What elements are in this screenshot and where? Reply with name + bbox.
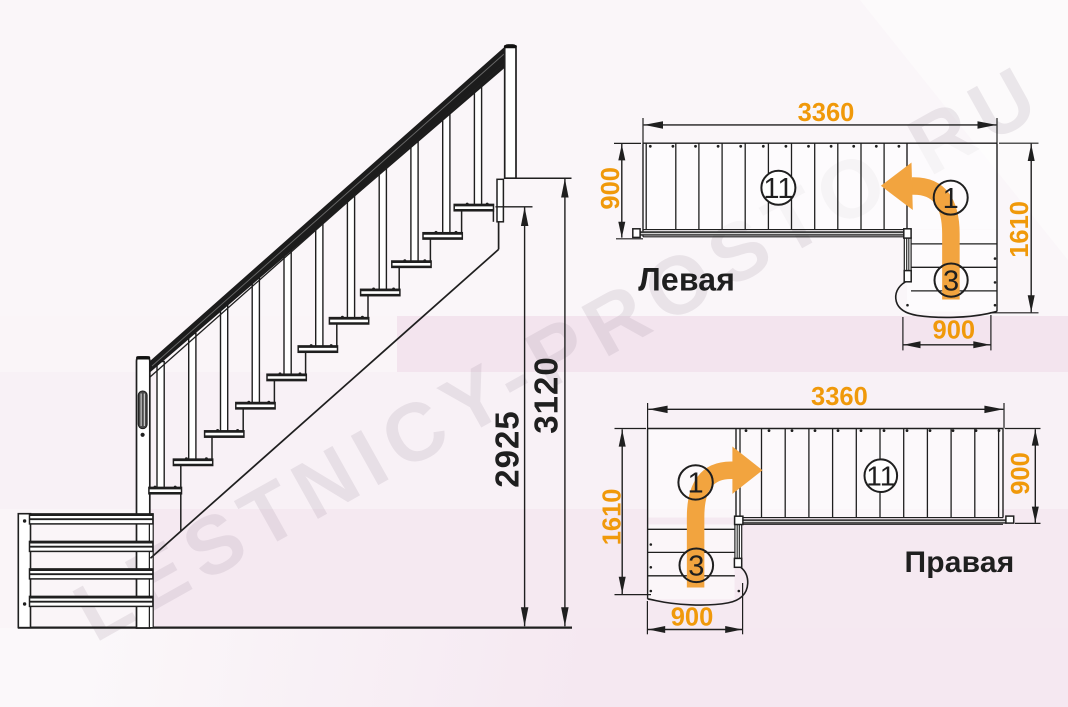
svg-text:11: 11: [763, 173, 793, 205]
svg-text:1: 1: [688, 468, 704, 500]
svg-text:11: 11: [866, 461, 895, 492]
svg-text:3: 3: [688, 551, 704, 583]
svg-text:900: 900: [671, 604, 714, 632]
svg-text:Правая: Правая: [905, 546, 1015, 579]
svg-text:1610: 1610: [1006, 201, 1034, 258]
svg-text:2925: 2925: [489, 410, 526, 487]
svg-text:3: 3: [943, 265, 959, 297]
svg-text:900: 900: [933, 317, 976, 345]
svg-text:900: 900: [597, 167, 625, 210]
svg-text:1: 1: [943, 183, 959, 215]
svg-text:900: 900: [1007, 452, 1035, 495]
svg-text:Левая: Левая: [638, 262, 735, 298]
svg-text:3360: 3360: [798, 99, 855, 127]
svg-text:3120: 3120: [528, 356, 565, 433]
svg-text:3360: 3360: [811, 383, 868, 411]
svg-text:1610: 1610: [599, 489, 627, 546]
